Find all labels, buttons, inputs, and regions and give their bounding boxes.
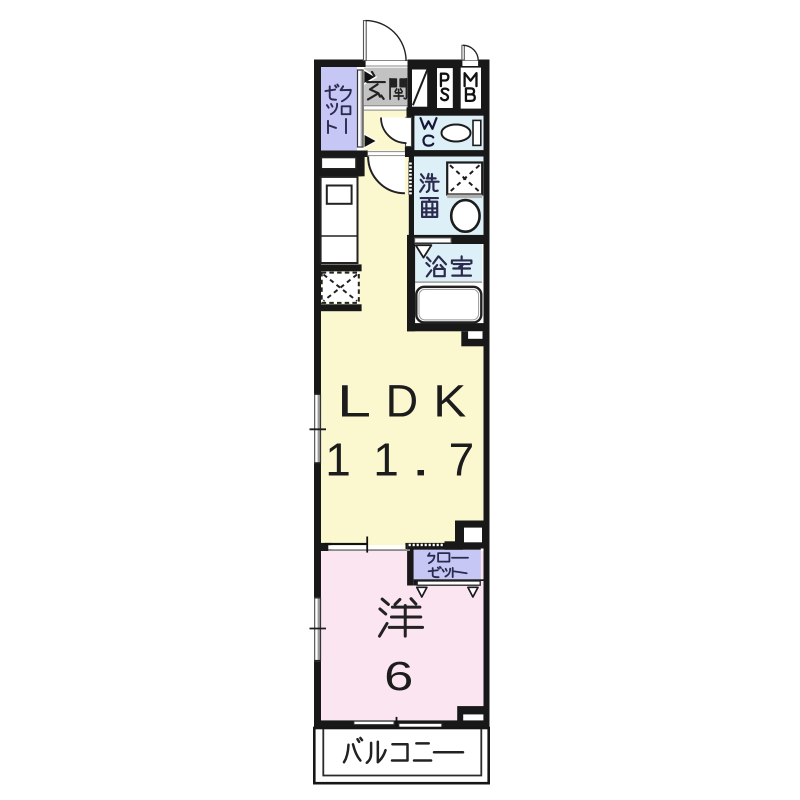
svg-text:K: K: [433, 376, 466, 427]
svg-text:1: 1: [325, 433, 351, 485]
svg-text:6: 6: [384, 653, 413, 699]
svg-text:D: D: [386, 376, 419, 427]
svg-text:L: L: [337, 376, 371, 427]
svg-text:7: 7: [449, 433, 475, 485]
svg-text:1: 1: [373, 433, 399, 485]
